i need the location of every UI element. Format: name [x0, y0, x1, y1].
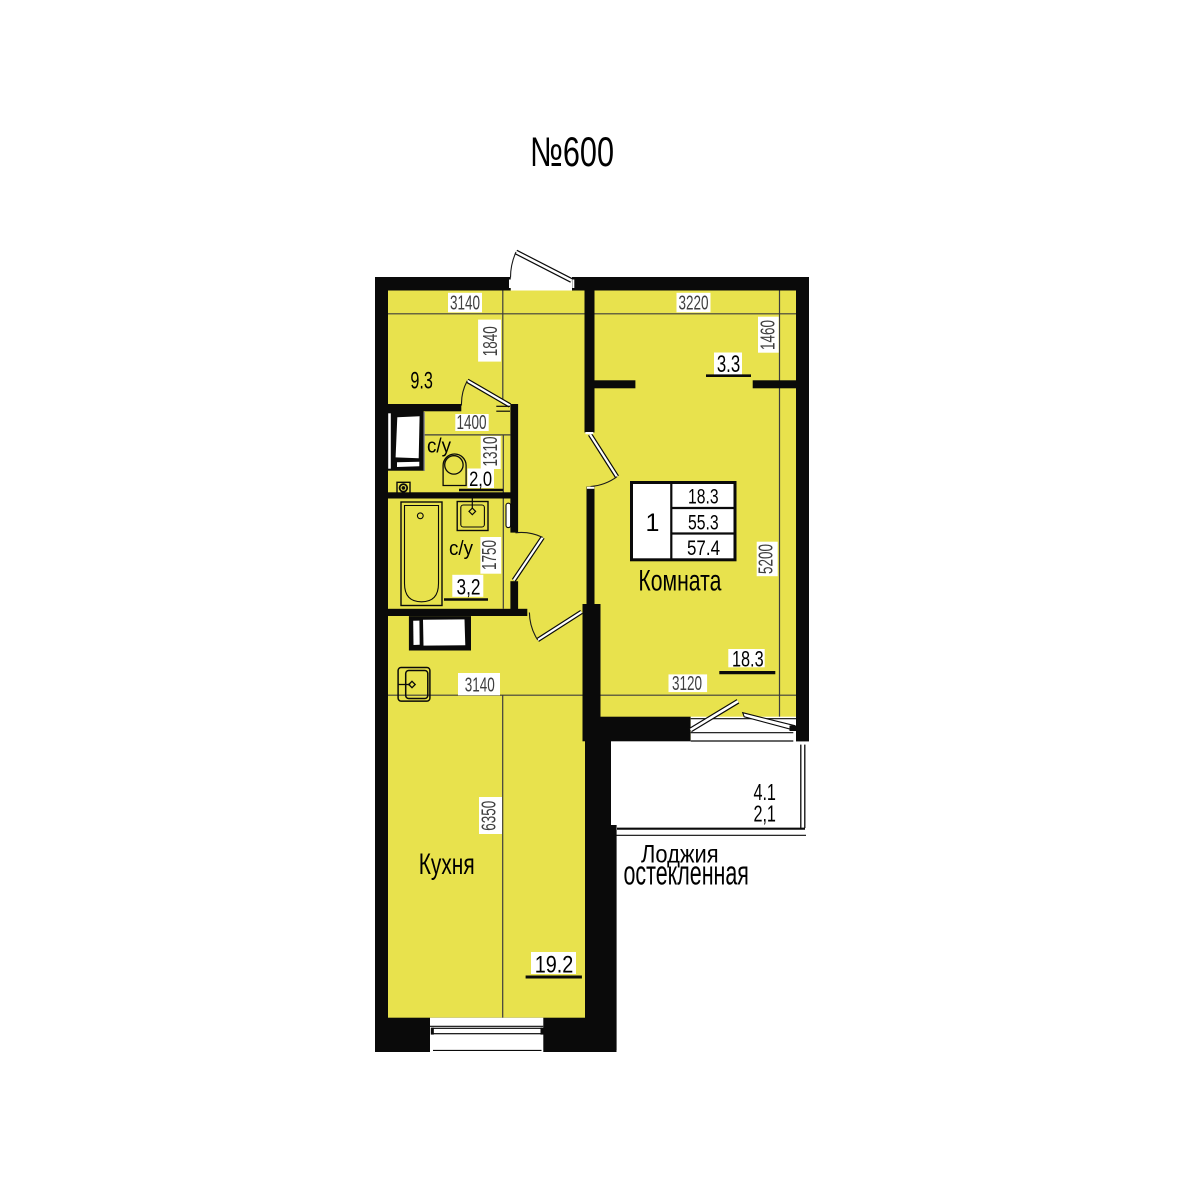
svg-text:18.3: 18.3	[732, 646, 764, 671]
svg-text:№600: №600	[530, 128, 614, 175]
svg-text:2,1: 2,1	[753, 801, 776, 827]
svg-text:18.3: 18.3	[688, 486, 719, 509]
svg-text:5200: 5200	[755, 544, 777, 574]
svg-text:3220: 3220	[679, 293, 709, 315]
svg-text:57.4: 57.4	[687, 537, 720, 560]
svg-text:1310: 1310	[480, 437, 502, 467]
svg-text:6350: 6350	[478, 801, 500, 831]
svg-text:3,2: 3,2	[457, 575, 481, 600]
svg-text:1750: 1750	[479, 540, 501, 570]
svg-text:3140: 3140	[465, 675, 495, 697]
svg-text:Кухня: Кухня	[419, 848, 475, 881]
svg-text:3140: 3140	[450, 293, 480, 315]
svg-text:остекленная: остекленная	[624, 855, 749, 893]
svg-text:3120: 3120	[672, 673, 702, 695]
svg-text:19.2: 19.2	[535, 952, 574, 979]
svg-text:3.3: 3.3	[717, 351, 740, 378]
svg-text:55.3: 55.3	[688, 512, 719, 535]
svg-text:2,0: 2,0	[469, 468, 492, 491]
svg-text:с/у: с/у	[427, 436, 451, 458]
svg-text:1840: 1840	[480, 326, 502, 356]
svg-text:9.3: 9.3	[410, 368, 433, 395]
svg-text:Комната: Комната	[638, 565, 721, 598]
svg-text:1: 1	[646, 509, 660, 537]
svg-text:с/у: с/у	[449, 538, 473, 560]
svg-text:1460: 1460	[757, 320, 779, 350]
svg-text:1400: 1400	[457, 412, 487, 434]
